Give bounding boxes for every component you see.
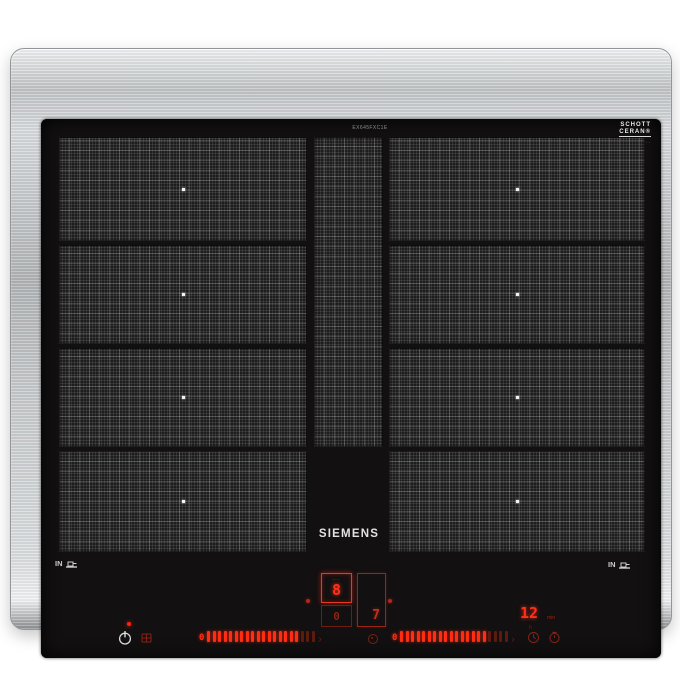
zone-select-dot-right [388,599,392,603]
power-indicator-dot [127,622,131,626]
timer-clock-button[interactable] [527,631,540,644]
cooking-zone-panel-right-2 [389,245,645,344]
power-level-digit: 8 [332,583,341,598]
pan-detection-mark-right: IN [608,560,631,569]
slider-zero-label: 0 [392,633,397,643]
pan-detect-label: IN [55,559,63,568]
cooking-zone-panel-right-1 [389,137,645,241]
zone-center-marker [182,396,185,399]
slider-bars: › [207,629,321,647]
zone-center-marker [516,500,519,503]
zone-center-marker [516,293,519,296]
zone-level-display[interactable]: ··· 8 [321,573,352,603]
settings-button[interactable] [141,632,153,644]
ceran-glass-surface: EX645FXC1E SCHOTT CERAN® · ··· ···· ·· ·… [41,119,661,658]
timer-value: 12 [520,606,538,621]
cooking-zone-panel-right-3 [389,348,645,447]
timer-unit-label: min [547,615,555,621]
right-level-digit: 7 [372,609,380,622]
cooking-zone-panel-left-3 [59,348,307,447]
power-slider-right[interactable]: 0 › [392,631,515,645]
cooking-zone-panel-left-2 [59,245,307,344]
zone-secondary-display[interactable]: 0 [321,605,352,627]
schott-ceran-logo: SCHOTT CERAN® [619,122,651,137]
pan-on-hob-icon [619,560,631,569]
zone-center-marker [182,293,185,296]
schott-logo-line2: CERAN® [619,129,651,135]
pan-detect-label: IN [608,560,616,569]
product-photo-induction-hob: EX645FXC1E SCHOTT CERAN® · ··· ···· ·· ·… [0,0,680,680]
pan-on-hob-icon [66,559,78,568]
model-code-print: EX645FXC1E [337,125,403,131]
settings-icon [141,632,153,644]
cooking-zone-panel-left-1 [59,137,307,241]
pan-detection-mark-left: IN [55,559,78,568]
slider-zero-label: 0 [199,633,204,643]
secondary-level-digit: 0 [333,611,340,622]
cooking-zone-panel-left-4 [59,451,307,552]
stainless-steel-frame: EX645FXC1E SCHOTT CERAN® · ··· ···· ·· ·… [10,48,672,630]
zone-select-dot-left [306,599,310,603]
zone-center-marker [182,500,185,503]
power-button[interactable] [117,630,133,646]
zone-transfer-icon[interactable] [368,634,378,644]
slider-bars: › [400,629,514,647]
power-icon [117,630,133,646]
kitchen-timer-icon [548,631,561,644]
clock-icon [527,631,540,644]
kitchen-timer-button[interactable] [548,631,561,644]
zone-center-marker [516,396,519,399]
schott-logo-line1: SCHOTT [620,122,651,128]
zone-center-marker [182,188,185,191]
zone-center-marker [516,188,519,191]
power-slider-left[interactable]: 0 › [199,631,322,645]
cooking-zone-panel-center [314,137,383,447]
zone-level-display-right[interactable]: 7 [357,573,386,627]
cooking-zone-panel-right-4 [389,451,645,552]
siemens-logo: SIEMENS [307,528,391,540]
